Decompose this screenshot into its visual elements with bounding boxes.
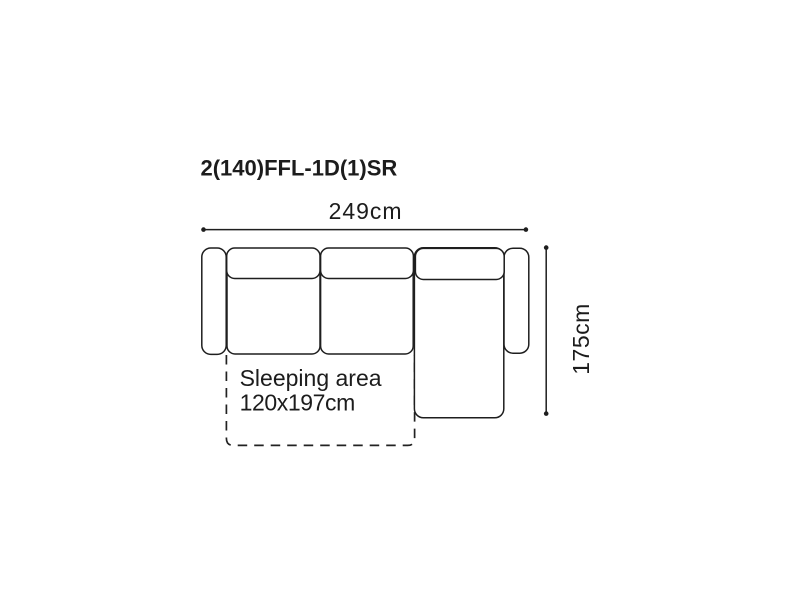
- svg-text:175cm: 175cm: [568, 303, 594, 375]
- svg-text:249cm: 249cm: [329, 198, 403, 224]
- svg-text:Sleeping area: Sleeping area: [240, 365, 382, 391]
- svg-text:120x197cm: 120x197cm: [240, 390, 355, 416]
- svg-text:2(140)FFL-1D(1)SR: 2(140)FFL-1D(1)SR: [201, 155, 398, 180]
